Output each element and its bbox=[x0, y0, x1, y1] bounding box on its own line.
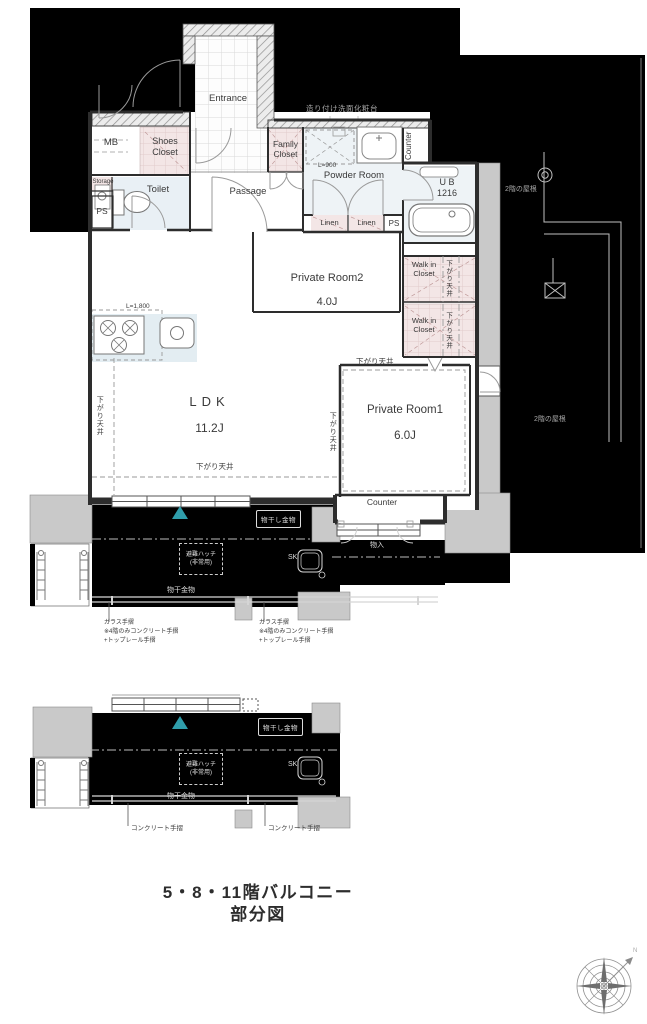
floorplan-drawing bbox=[0, 0, 647, 1024]
room-label-mb: MB bbox=[97, 137, 125, 148]
washer-dimension: L=900 bbox=[318, 162, 336, 170]
lowered-ceiling-pr1-top: 下がり天井 bbox=[356, 358, 394, 367]
room-size-private-room1: 6.0J bbox=[342, 430, 468, 444]
room-label-counter-south: Counter bbox=[352, 497, 412, 507]
room-label-private-room2: Private Room2 bbox=[263, 272, 391, 285]
room-label-walkin-upper: Walk in Closet bbox=[404, 261, 444, 279]
room-label-family-closet: Family Closet bbox=[267, 139, 304, 159]
lower-roof-note-lower: 2階の屋根 bbox=[534, 416, 566, 424]
lowered-ceiling-walkin-lower: 下がり天井 bbox=[444, 312, 452, 350]
room-label-passage: Passage bbox=[222, 186, 274, 197]
room-label-linen-right: Linen bbox=[348, 219, 385, 228]
kitchen-dimension: L=1,800 bbox=[126, 303, 150, 311]
concrete-handrail-note-left: コンクリート手摺 bbox=[131, 825, 183, 833]
room-label-ps-right: PS bbox=[384, 219, 404, 228]
room-label-shoes-closet: Shoes Closet bbox=[139, 136, 191, 157]
drying-fixture-label-1: 物干金物 bbox=[158, 587, 204, 595]
room-label-private-room1: Private Room1 bbox=[342, 404, 468, 418]
builtin-vanity-note: 造り付け洗面化粧台 bbox=[306, 105, 378, 114]
drying-fixture-boxed-label-1: 物干し金物 bbox=[256, 510, 301, 528]
floorplan-page: 造り付け洗面化粧台 Entrance MB Shoes Closet Famil… bbox=[0, 0, 647, 1024]
room-label-unit-bath: U B 1216 bbox=[420, 177, 474, 198]
toilet-tank-icon bbox=[113, 190, 124, 215]
room-label-entrance: Entrance bbox=[192, 93, 264, 104]
glass-handrail-note-left: ガラス手摺 ※4階のみコンクリート手摺 +トップレール手摺 bbox=[104, 619, 178, 646]
lowered-ceiling-ldk-right: 下がり天井 bbox=[328, 412, 336, 452]
drying-fixture-boxed-label-2: 物干し金物 bbox=[258, 718, 303, 736]
room-label-powder-room: Powder Room bbox=[316, 170, 392, 181]
drying-fixture-label-2: 物干金物 bbox=[158, 793, 204, 801]
compass-icon bbox=[577, 957, 633, 1015]
room-label-toilet: Toilet bbox=[138, 184, 178, 195]
concrete-handrail-note-right: コンクリート手摺 bbox=[268, 825, 320, 833]
diagram-caption: 5・8・11階バルコニー 部分図 bbox=[148, 882, 368, 926]
room-label-walkin-lower: Walk in Closet bbox=[404, 317, 444, 335]
slop-sink-label-2: SK bbox=[288, 761, 297, 769]
lowered-ceiling-ldk-left: 下がり天井 bbox=[95, 396, 103, 436]
compass-north-label: N bbox=[633, 948, 637, 955]
stove-icon bbox=[94, 316, 144, 354]
room-label-ldk: LDK bbox=[172, 394, 247, 409]
glass-handrail-note-right: ガラス手摺 ※4階のみコンクリート手摺 +トップレール手摺 bbox=[259, 619, 333, 646]
room-size-ldk: 11.2J bbox=[172, 421, 247, 435]
lowered-ceiling-walkin-upper: 下がり天井 bbox=[444, 260, 452, 298]
room-label-linen-left: Linen bbox=[311, 219, 348, 228]
lowered-ceiling-ldk-bottom: 下がり天井 bbox=[196, 463, 234, 472]
evacuation-hatch-label-2: 避難ハッチ (非常用) bbox=[179, 753, 223, 785]
sink-icon bbox=[160, 318, 194, 348]
lower-roof-note-upper: 2階の屋根 bbox=[505, 186, 537, 194]
room-label-storage: Storage bbox=[89, 179, 117, 186]
vanity-icon bbox=[357, 127, 402, 163]
room-label-counter-north: Counter bbox=[404, 120, 413, 160]
storage-box-label: 物入 bbox=[361, 542, 393, 550]
slop-sink-label-1: SK bbox=[288, 554, 297, 562]
room-size-private-room2: 4.0J bbox=[263, 296, 391, 309]
room-label-ps-left: PS bbox=[92, 206, 112, 216]
evacuation-hatch-label-1: 避難ハッチ (非常用) bbox=[179, 543, 223, 575]
